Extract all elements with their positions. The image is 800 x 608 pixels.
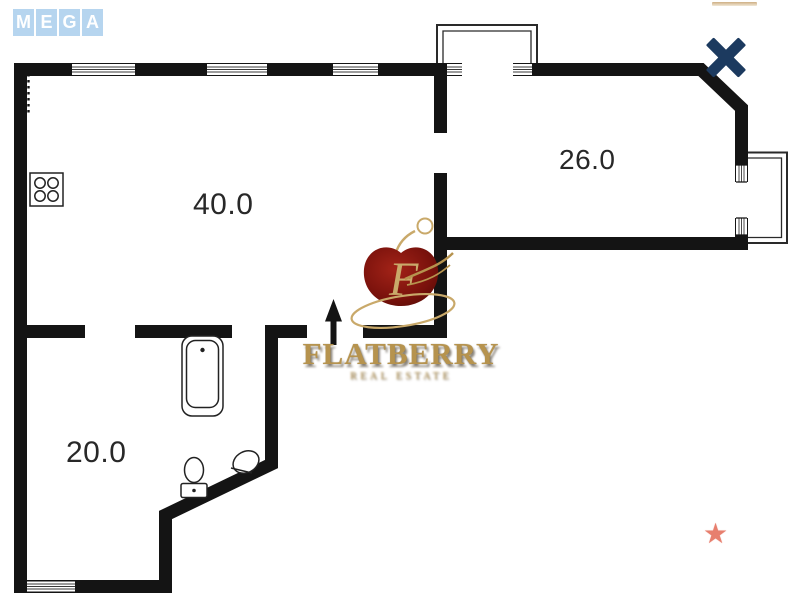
cropped-top-element	[712, 2, 757, 6]
top-balcony-outline	[437, 25, 537, 63]
window-icon	[333, 64, 378, 75]
close-icon[interactable]	[703, 34, 749, 80]
window-icon	[736, 165, 747, 182]
flatberry-brand-text: FLATBERRY	[296, 336, 506, 372]
window-icon	[27, 582, 75, 592]
stove-icon	[30, 173, 63, 206]
mega-logo: M E G A	[13, 9, 103, 36]
room-area-label-26: 26.0	[559, 144, 616, 176]
bathtub-icon	[182, 336, 223, 416]
window-icon	[736, 218, 747, 235]
flatberry-watermark: F FLATBERRY REAL ESTATE	[296, 203, 506, 393]
right-balcony-outline	[748, 153, 787, 244]
room-area-label-20: 20.0	[66, 436, 126, 470]
room-area-label-40: 40.0	[193, 188, 253, 222]
mega-logo-letter: E	[36, 9, 57, 36]
flatberry-tagline: REAL ESTATE	[296, 371, 506, 382]
star-icon: ★	[703, 520, 728, 548]
window-icon	[513, 64, 532, 75]
mega-logo-letter: M	[13, 9, 34, 36]
window-icon	[207, 64, 267, 75]
toilet-icon	[181, 458, 207, 498]
window-icon	[447, 64, 462, 75]
mega-logo-letter: G	[59, 9, 80, 36]
wall-outline-top-right	[513, 70, 742, 183]
window-icon	[72, 64, 135, 75]
mega-logo-letter: A	[82, 9, 103, 36]
cherry-logo-icon: F	[341, 203, 461, 338]
